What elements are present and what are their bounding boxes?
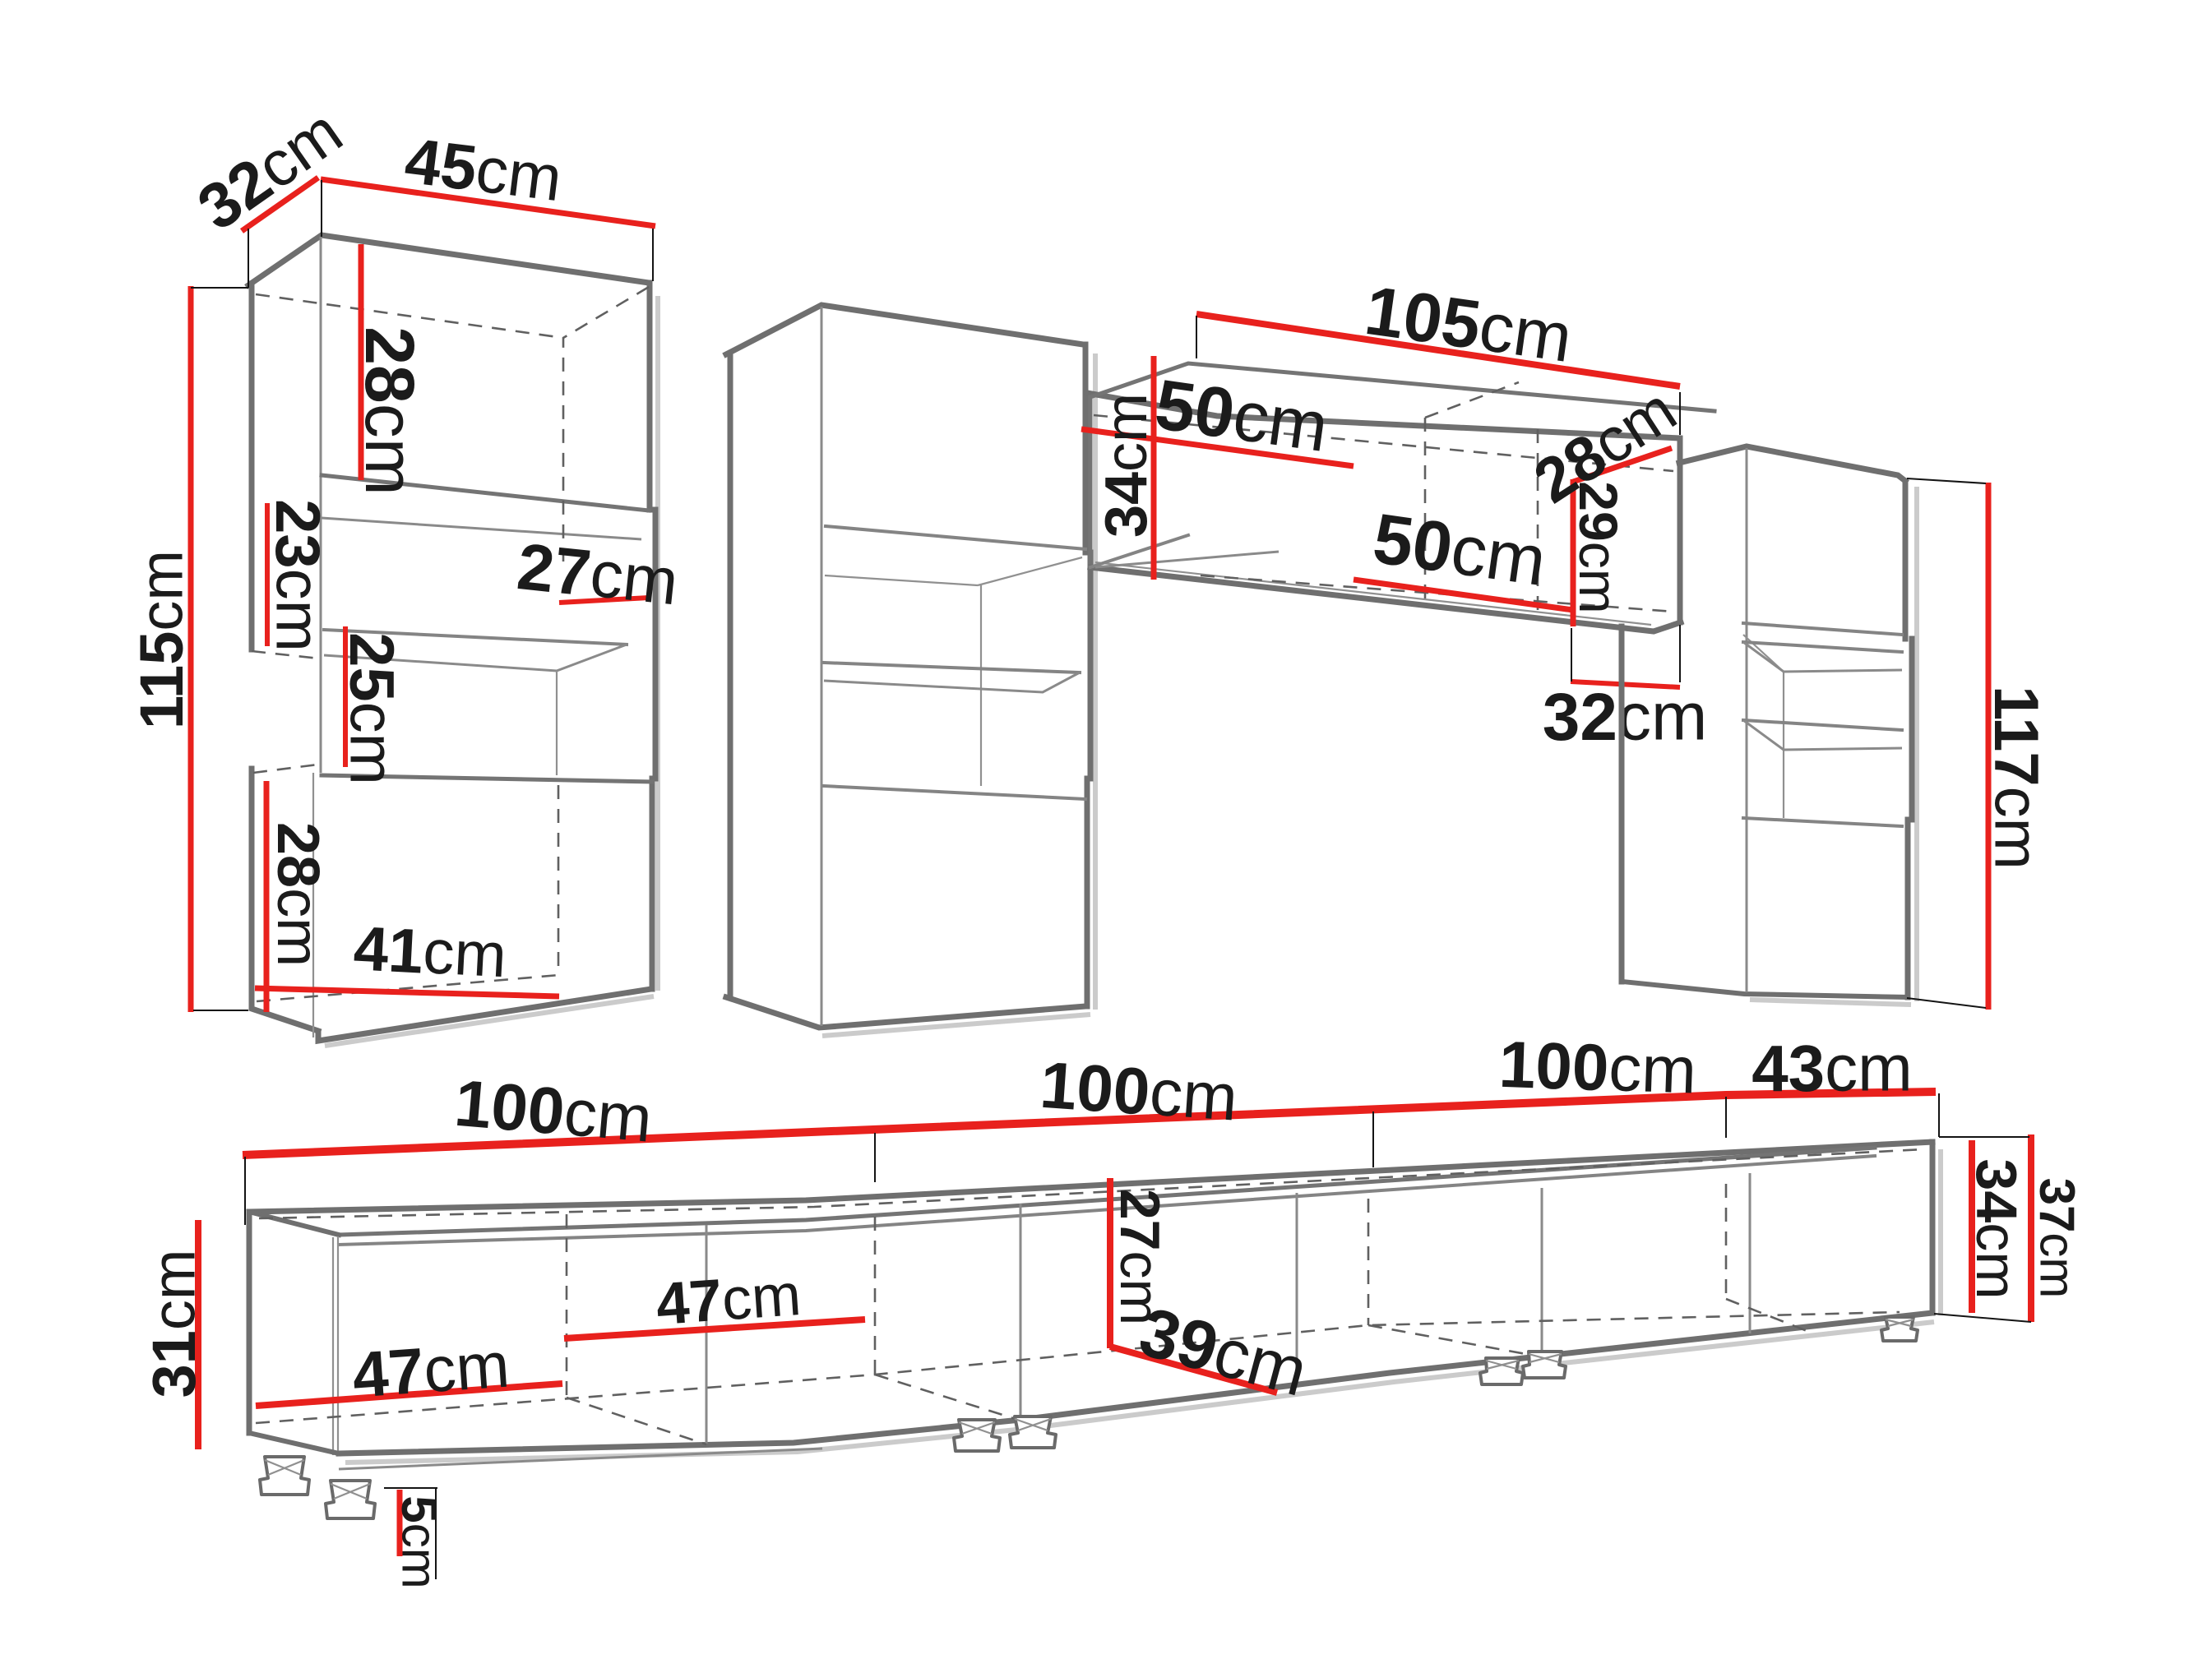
svg-text:32cm: 32cm [1543,680,1708,755]
svg-text:41cm: 41cm [352,913,508,991]
svg-text:47cm: 47cm [350,1328,511,1411]
svg-text:34cm: 34cm [1964,1158,2029,1299]
svg-text:29cm: 29cm [1568,481,1629,613]
svg-text:25cm: 25cm [337,632,407,785]
svg-text:31cm: 31cm [140,1250,208,1398]
svg-text:43cm: 43cm [1752,1032,1913,1105]
svg-text:37cm: 37cm [2030,1178,2085,1299]
svg-text:100cm: 100cm [1038,1047,1240,1134]
svg-text:100cm: 100cm [1497,1027,1697,1107]
svg-text:28cm: 28cm [265,822,331,967]
svg-text:34cm: 34cm [1094,393,1159,538]
svg-text:23cm: 23cm [263,499,333,652]
svg-text:115cm: 115cm [127,550,196,729]
svg-text:47cm: 47cm [654,1262,803,1338]
svg-text:117cm: 117cm [1982,686,2052,870]
svg-text:28cm: 28cm [351,326,428,495]
svg-text:5cm: 5cm [392,1495,447,1588]
